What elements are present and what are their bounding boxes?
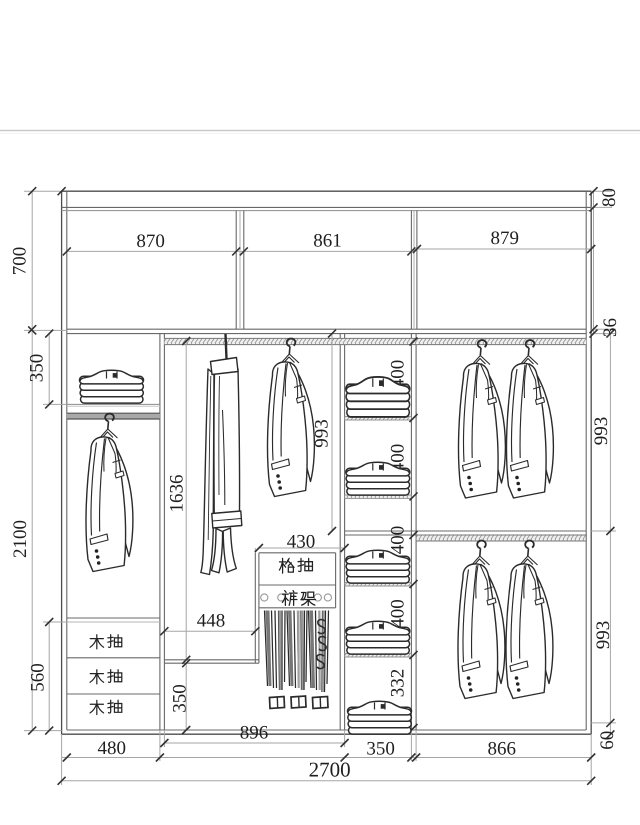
svg-text:332: 332 xyxy=(388,669,409,698)
svg-text:350: 350 xyxy=(169,684,190,713)
svg-text:896: 896 xyxy=(240,723,269,744)
svg-text:700: 700 xyxy=(10,247,31,276)
svg-text:1636: 1636 xyxy=(166,475,187,513)
svg-text:870: 870 xyxy=(136,231,165,252)
svg-text:866: 866 xyxy=(488,739,517,760)
svg-text:480: 480 xyxy=(98,738,127,759)
svg-text:60: 60 xyxy=(597,731,618,750)
svg-text:430: 430 xyxy=(287,531,316,552)
svg-text:993: 993 xyxy=(593,621,614,650)
svg-text:2700: 2700 xyxy=(309,757,351,781)
svg-text:560: 560 xyxy=(28,663,49,692)
svg-text:80: 80 xyxy=(599,188,620,207)
svg-text:861: 861 xyxy=(313,231,342,252)
svg-text:879: 879 xyxy=(490,228,519,249)
svg-text:993: 993 xyxy=(591,417,612,446)
svg-text:350: 350 xyxy=(27,354,48,383)
svg-text:350: 350 xyxy=(366,739,395,760)
svg-text:36: 36 xyxy=(600,318,621,337)
svg-text:400: 400 xyxy=(388,526,409,555)
svg-text:448: 448 xyxy=(197,611,226,632)
svg-text:2100: 2100 xyxy=(10,520,31,558)
